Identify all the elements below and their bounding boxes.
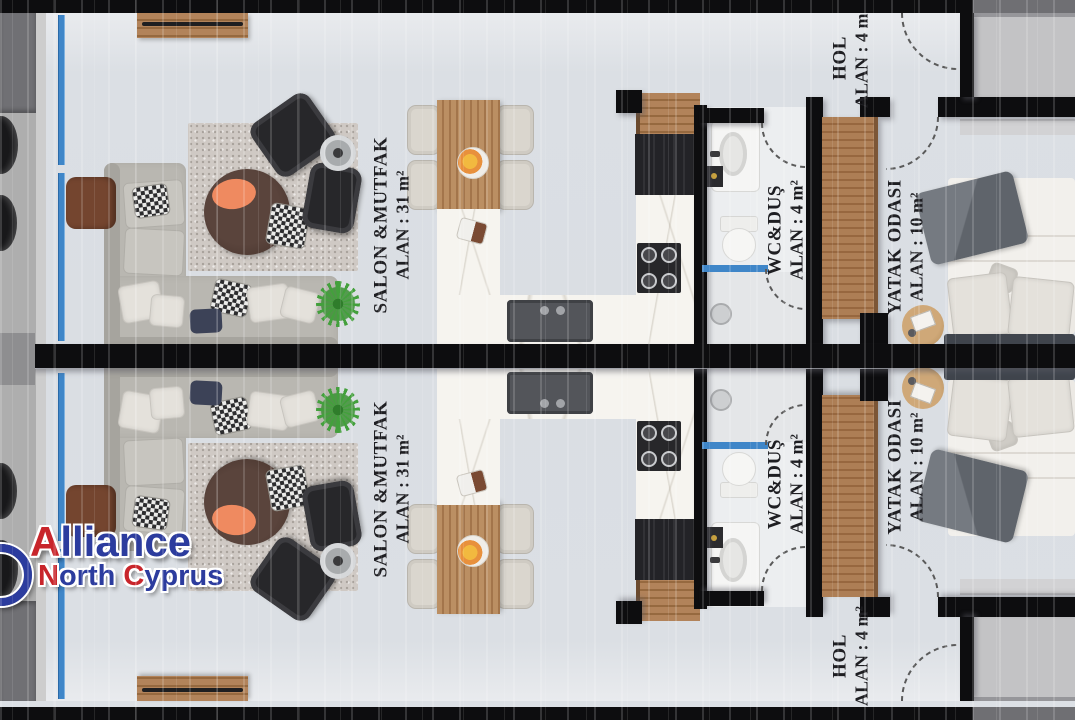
bedroom-top-wall (938, 597, 1075, 617)
bedroom-wall-stub (860, 369, 888, 401)
fruit-plate (457, 535, 489, 567)
watermark-brand: Alliance (30, 518, 191, 566)
kitchen-wall-stub (616, 601, 642, 624)
shower-glass-partition (702, 265, 768, 272)
region-initial: N (38, 560, 59, 592)
bathroom-cabinet-knob (711, 535, 717, 541)
bathroom-top-wall (700, 108, 764, 123)
sofa-cushion (123, 227, 185, 276)
watermark-region: North Cyprus (38, 560, 223, 593)
room-name: HOL (828, 606, 851, 706)
dining-chair (496, 160, 534, 210)
window-glass (58, 15, 65, 165)
balcony-divider-block (0, 333, 35, 385)
kitchen-sink (507, 300, 593, 342)
bed-fold-line (948, 452, 1075, 454)
outside-corridor (974, 617, 1075, 701)
apartment-unit-top: SALON &MUTFAK ALAN : 31 m² WC&DUŞ ALAN :… (0, 13, 1075, 345)
stove-burner (661, 425, 677, 441)
bed-pillow (1007, 276, 1075, 342)
wardrobe (822, 395, 878, 597)
room-name: SALON &MUTFAK (369, 137, 392, 314)
hall-corridor-wall (960, 13, 974, 97)
plant (316, 281, 360, 327)
bathroom-cabinet-knob (711, 173, 717, 179)
tv-screen (142, 688, 243, 692)
fruit-plate (457, 147, 489, 179)
sofa-tray (189, 380, 222, 406)
room-area: ALAN : 10 m² (907, 179, 929, 315)
watermark-logo: Alliance North Cyprus (0, 520, 260, 615)
balcony-partition-block (0, 13, 36, 113)
bed-fold-line (948, 260, 1075, 262)
stove-burner (641, 425, 657, 441)
bedside-cup (908, 377, 916, 385)
logo-ring-icon (0, 544, 32, 606)
sofa-tray (189, 308, 222, 334)
stove-burner (641, 247, 657, 263)
bedroom-closet-strip (960, 119, 1075, 135)
brand-initial: A (30, 518, 60, 565)
room-area: ALAN : 4 m² (787, 434, 809, 534)
fridge (636, 93, 700, 134)
sink-faucet (540, 399, 549, 408)
stove-burner (661, 247, 677, 263)
room-name: YATAK ODASI (883, 179, 906, 315)
vanity-basin (719, 538, 747, 582)
wardrobe (822, 117, 878, 319)
room-label-living: SALON &MUTFAK ALAN : 31 m² (369, 137, 414, 314)
brand-rest: lliance (60, 518, 191, 565)
shower-drain (710, 389, 732, 411)
sofa-pillow (149, 386, 186, 421)
room-name: SALON &MUTFAK (369, 401, 392, 578)
room-area: ALAN : 4 m² (787, 180, 809, 280)
plant (316, 387, 360, 433)
tall-cabinet (635, 134, 699, 195)
sink-faucet (556, 306, 565, 315)
kitchen-sink (507, 372, 593, 414)
bed-pillow (946, 374, 1013, 443)
outer-wall-top-corridor (973, 0, 1075, 13)
sink-faucet (556, 399, 565, 408)
floor-plan: SALON &MUTFAK ALAN : 31 m² WC&DUŞ ALAN :… (0, 0, 1075, 720)
tv-screen (142, 22, 243, 26)
stove-burner (661, 273, 677, 289)
bedroom-closet-strip (960, 579, 1075, 595)
dining-chair (496, 105, 534, 155)
hall-corridor-wall (960, 617, 974, 701)
sofa-pillow (149, 294, 186, 329)
bedside-cup (908, 329, 916, 337)
room-area: ALAN : 31 m² (393, 401, 415, 578)
side-table (66, 177, 116, 229)
stove (637, 243, 681, 293)
stove-burner (641, 273, 657, 289)
stove (637, 421, 681, 471)
dining-chair (496, 504, 534, 554)
stove-burner (641, 451, 657, 467)
room-name: YATAK ODASI (883, 399, 906, 535)
room-label-living: SALON &MUTFAK ALAN : 31 m² (369, 401, 414, 578)
vanity-basin (719, 132, 747, 176)
shower-glass-partition (702, 442, 768, 449)
outer-wall-bottom-corridor (973, 707, 1075, 720)
room-area: ALAN : 10 m² (907, 399, 929, 535)
tall-cabinet (635, 519, 699, 580)
room-label-hall: HOL ALAN : 4 m² (828, 606, 873, 706)
vanity-faucet (710, 557, 720, 563)
toilet-bowl (722, 228, 756, 262)
room-label-bathroom: WC&DUŞ ALAN : 4 m² (763, 180, 808, 280)
round-side-table-center (333, 556, 343, 566)
sofa-cushion (123, 437, 185, 486)
region-initial: C (123, 560, 144, 592)
room-area: ALAN : 31 m² (393, 137, 415, 314)
bed-pillow (946, 272, 1013, 341)
balcony-partition-block (0, 601, 36, 701)
toilet-bowl (722, 452, 756, 486)
outer-wall-bottom (0, 707, 973, 720)
room-label-bathroom: WC&DUŞ ALAN : 4 m² (763, 434, 808, 534)
room-label-hall: HOL ALAN : 4 m² (828, 8, 873, 108)
stove-burner (661, 451, 677, 467)
room-name: HOL (828, 8, 851, 108)
region-word: yprus (144, 560, 223, 592)
room-label-bedroom: YATAK ODASI ALAN : 10 m² (883, 399, 928, 535)
bedroom-wall-stub (860, 313, 888, 345)
armchair (301, 479, 364, 553)
window-glass (58, 173, 65, 341)
party-wall-middle (33, 344, 1075, 368)
room-area: ALAN : 4 m² (852, 606, 874, 706)
bed-pillow (1007, 372, 1075, 438)
room-name: WC&DUŞ (763, 180, 786, 280)
wall-kitchen-bathroom (694, 369, 707, 609)
sink-faucet (540, 306, 549, 315)
room-name: WC&DUŞ (763, 434, 786, 534)
kitchen-wall-stub (616, 90, 642, 113)
vanity-faucet (710, 151, 720, 157)
region-word: orth (59, 560, 123, 592)
round-side-table-center (333, 148, 343, 158)
dining-chair (496, 559, 534, 609)
bedroom-top-wall (938, 97, 1075, 117)
balcony-edge (36, 13, 46, 345)
outside-corridor (974, 13, 1075, 97)
fridge (636, 580, 700, 621)
shower-drain (710, 303, 732, 325)
window-glass (58, 373, 65, 541)
sofa-pillow-patterned (131, 183, 171, 220)
room-label-bedroom: YATAK ODASI ALAN : 10 m² (883, 179, 928, 315)
room-area: ALAN : 4 m² (852, 8, 874, 108)
bathroom-top-wall (700, 591, 764, 606)
wall-kitchen-bathroom (694, 105, 707, 345)
outer-wall-top (0, 0, 973, 13)
